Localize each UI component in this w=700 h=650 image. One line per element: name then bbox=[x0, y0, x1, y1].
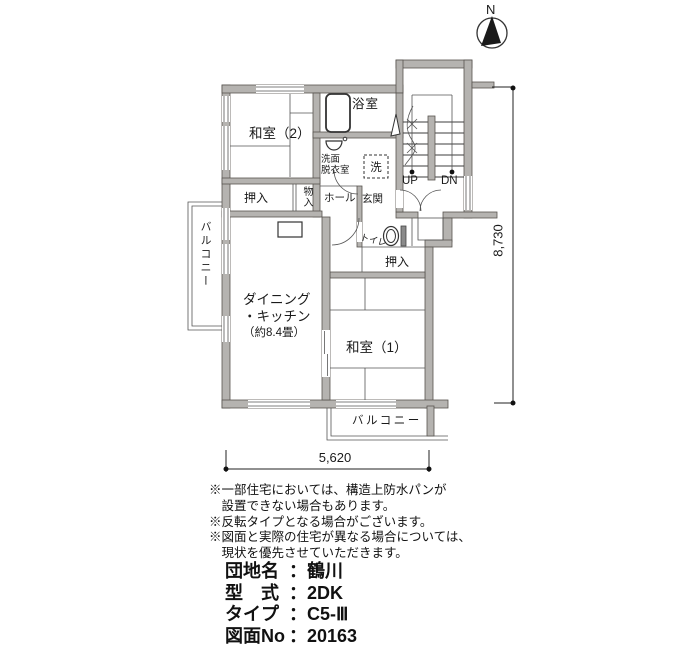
storage-label: 物入 bbox=[299, 186, 314, 218]
info-sep: ： bbox=[289, 561, 307, 581]
sink-faucet-icon bbox=[343, 137, 347, 141]
info-value-plan-type: C5-Ⅲ bbox=[307, 604, 348, 624]
closet-upper-label: 押入 bbox=[244, 189, 268, 206]
info-label-complex: 団地名 bbox=[225, 561, 289, 583]
stairs-down-label: DN bbox=[441, 175, 458, 187]
info-row-plan-type: タイプ：C5-Ⅲ bbox=[225, 604, 357, 626]
dk-line1: ダイニング bbox=[243, 292, 311, 309]
staircase bbox=[400, 95, 464, 211]
hall-label: ホール bbox=[324, 190, 356, 205]
washroom-line2: 脱衣室 bbox=[321, 165, 350, 176]
entrance-label: 玄関 bbox=[362, 191, 383, 206]
laundry-label: 洗 bbox=[364, 159, 388, 175]
info-label-drawing-no: 図面No bbox=[225, 626, 289, 648]
info-label-plan-type: タイプ bbox=[225, 604, 289, 626]
room-label-washitsu1: 和室（1） bbox=[346, 336, 408, 356]
note-line-2: 設置できない場合もあります。 bbox=[209, 499, 471, 515]
note-line-5: 現状を優先させていただきます。 bbox=[209, 546, 471, 562]
info-row-complex: 団地名：鶴川 bbox=[225, 561, 357, 583]
dk-line2: ・キッチン bbox=[243, 309, 311, 326]
room-label-washroom: 洗面 脱衣室 bbox=[321, 154, 350, 176]
info-sep: ： bbox=[289, 604, 307, 624]
stairs-up-label: UP bbox=[402, 175, 418, 187]
info-row-type: 型 式：2DK bbox=[225, 583, 357, 605]
note-line-3: ※反転タイプとなる場合がございます。 bbox=[209, 515, 471, 531]
compass-north-label: N bbox=[486, 2, 495, 17]
balcony-left-label: バルコニー bbox=[197, 221, 213, 331]
room-label-washitsu2: 和室（2） bbox=[249, 122, 311, 142]
dimension-height-label: 8,730 bbox=[491, 217, 506, 265]
info-row-drawing-no: 図面No：20163 bbox=[225, 626, 357, 648]
compass-icon bbox=[477, 16, 507, 48]
dk-line3: （約8.4畳） bbox=[243, 325, 311, 342]
floorplan-page: N 和室（2） 浴室 洗面 脱衣室 洗 UP DN 押入 物入 ホール 玄関 ト… bbox=[0, 0, 700, 650]
dining-kitchen-label: ダイニング ・キッチン （約8.4畳） bbox=[243, 292, 311, 342]
note-line-4: ※図面と実際の住宅が異なる場合については、 bbox=[209, 530, 471, 546]
room-label-bath: 浴室 bbox=[352, 93, 379, 112]
title-block: 団地名：鶴川 型 式：2DK タイプ：C5-Ⅲ 図面No：20163 bbox=[225, 561, 357, 647]
info-value-type: 2DK bbox=[307, 583, 343, 603]
closet-lower-label: 押入 bbox=[376, 253, 418, 270]
dimension-width-label: 5,620 bbox=[307, 450, 363, 465]
footnotes: ※一部住宅においては、構造上防水パンが 設置できない場合もあります。 ※反転タイ… bbox=[209, 483, 471, 562]
info-value-drawing-no: 20163 bbox=[307, 626, 357, 646]
balcony-bottom-label: バルコニー bbox=[352, 412, 422, 428]
info-sep: ： bbox=[289, 583, 307, 603]
info-sep: ： bbox=[289, 626, 307, 646]
kitchen-counter-icon bbox=[278, 222, 302, 237]
info-label-type: 型 式 bbox=[225, 583, 289, 605]
sink-icon bbox=[326, 141, 342, 150]
note-line-1: ※一部住宅においては、構造上防水パンが bbox=[209, 483, 471, 499]
bathtub-icon bbox=[326, 94, 350, 132]
washroom-line1: 洗面 bbox=[321, 154, 350, 165]
info-value-complex: 鶴川 bbox=[307, 561, 343, 581]
